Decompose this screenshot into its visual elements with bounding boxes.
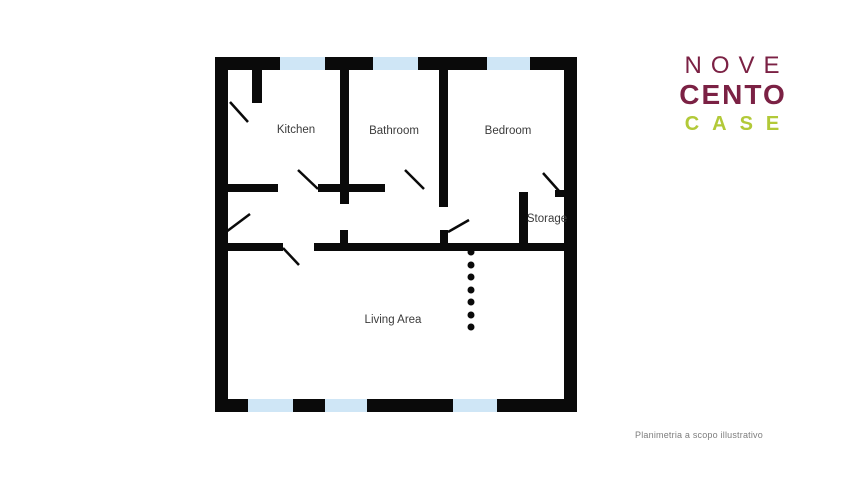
wall-kitchen-bath-divider [340,70,349,204]
wall-hall-bottom-left [228,243,283,251]
disclaimer-text: Planimetria a scopo illustrativo [635,430,763,440]
divider-dot-7 [468,324,475,331]
room-label-kitchen: Kitchen [277,124,315,136]
divider-dot-6 [468,312,475,319]
wall-outer-right [564,57,577,412]
agency-logo: NOVE CENTO CASE [668,54,796,134]
divider-dot-3 [468,274,475,281]
window-top-2 [373,57,418,70]
page: KitchenBathroomBedroomStorageLiving Area… [0,0,854,480]
room-label-storage: Storage [527,213,567,225]
wall-hall-stub-2 [440,230,448,243]
divider-dot-2 [468,262,475,269]
divider-dot-4 [468,287,475,294]
logo-word-nove: NOVE [677,54,796,78]
divider-dot-1 [468,249,475,256]
door-kitchen-hall [298,170,318,189]
window-bottom-3 [453,399,497,412]
door-storage [543,173,559,191]
window-bottom-2 [325,399,367,412]
wall-bath-bedroom-divider [439,70,448,207]
wall-hall-stub-1 [340,230,348,243]
wall-outer-left [215,57,228,412]
room-label-living-area: Living Area [365,314,423,326]
door-bedroom-hall [448,220,469,232]
door-bathroom [405,170,424,189]
wall-kitchen-bottom-wall [228,184,278,192]
logo-word-cento: CENTO [670,81,796,109]
room-label-bedroom: Bedroom [485,125,532,137]
divider-dot-5 [468,299,475,306]
door-hall-left [226,214,250,232]
window-bottom-1 [248,399,293,412]
logo-word-case: CASE [681,114,796,134]
wall-bathroom-bottom-wall [318,184,385,192]
window-top-1 [280,57,325,70]
wall-hall-bottom-right [314,243,564,251]
wall-storage-right-stub [555,190,566,197]
room-label-bathroom: Bathroom [369,125,419,137]
door-kitchen-entry [230,102,248,122]
wall-kitchen-stub [252,70,262,103]
window-top-3 [487,57,530,70]
door-living-area [283,248,299,265]
